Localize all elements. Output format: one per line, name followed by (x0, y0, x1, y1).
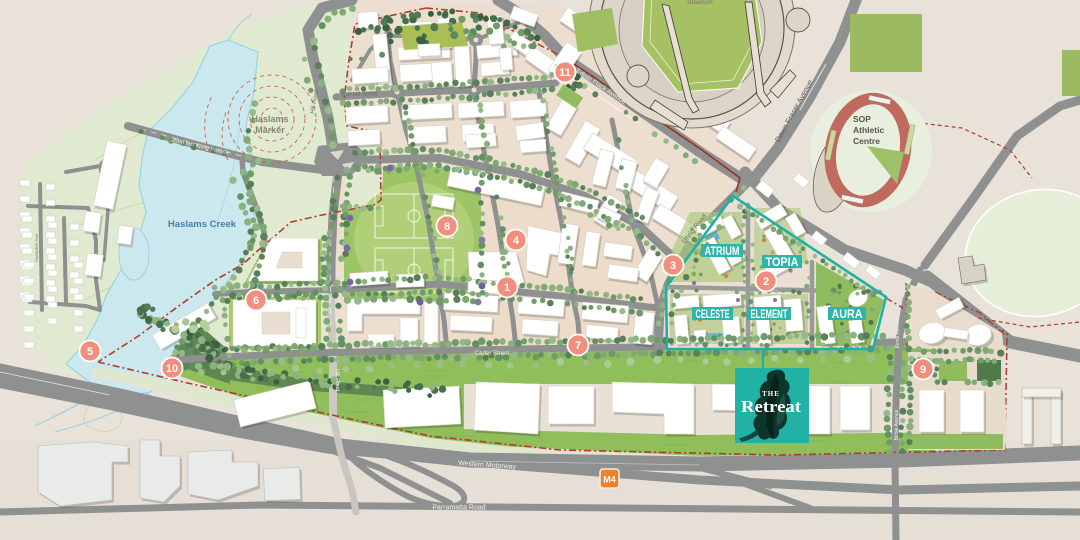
svg-text:ATRIUM: ATRIUM (705, 246, 740, 258)
svg-text:Hill Road: Hill Road (334, 369, 340, 391)
svg-text:M4: M4 (603, 475, 616, 485)
svg-text:Hampden Ave: Hampden Ave (34, 233, 39, 262)
svg-text:3: 3 (670, 260, 676, 272)
svg-text:1: 1 (504, 282, 510, 294)
svg-text:Retreat: Retreat (741, 397, 801, 416)
svg-text:11: 11 (559, 67, 571, 79)
svg-text:Marker: Marker (255, 125, 285, 135)
svg-text:TOPIA: TOPIA (766, 257, 799, 269)
svg-text:Stadium: Stadium (687, 0, 713, 6)
svg-text:ELEMENT: ELEMENT (751, 309, 788, 321)
svg-text:2: 2 (763, 276, 769, 288)
svg-text:SOP: SOP (853, 114, 871, 124)
svg-text:6: 6 (253, 295, 259, 307)
svg-text:CELESTE: CELESTE (696, 309, 730, 321)
svg-text:Parramatta Road: Parramatta Road (432, 505, 485, 512)
svg-text:Birnie Avenue: Birnie Avenue (894, 409, 900, 440)
svg-text:Owens Avenue: Owens Avenue (62, 246, 67, 277)
svg-text:Athletic: Athletic (853, 125, 884, 135)
svg-text:Henry Avenue: Henry Avenue (34, 204, 63, 209)
svg-text:Haslams: Haslams (251, 114, 288, 124)
svg-text:Haslams Creek: Haslams Creek (168, 219, 237, 230)
svg-text:4: 4 (513, 235, 520, 247)
svg-text:AURA: AURA (832, 309, 863, 321)
svg-text:9: 9 (920, 364, 926, 376)
svg-text:5: 5 (87, 346, 93, 358)
svg-text:10: 10 (166, 363, 178, 375)
svg-text:Centre: Centre (853, 136, 880, 146)
svg-text:Carter Street: Carter Street (475, 351, 510, 357)
svg-text:8: 8 (444, 221, 450, 233)
svg-text:7: 7 (575, 340, 581, 352)
svg-text:Birnie Avenue: Birnie Avenue (895, 317, 901, 348)
svg-text:Fantail Street: Fantail Street (342, 92, 378, 98)
